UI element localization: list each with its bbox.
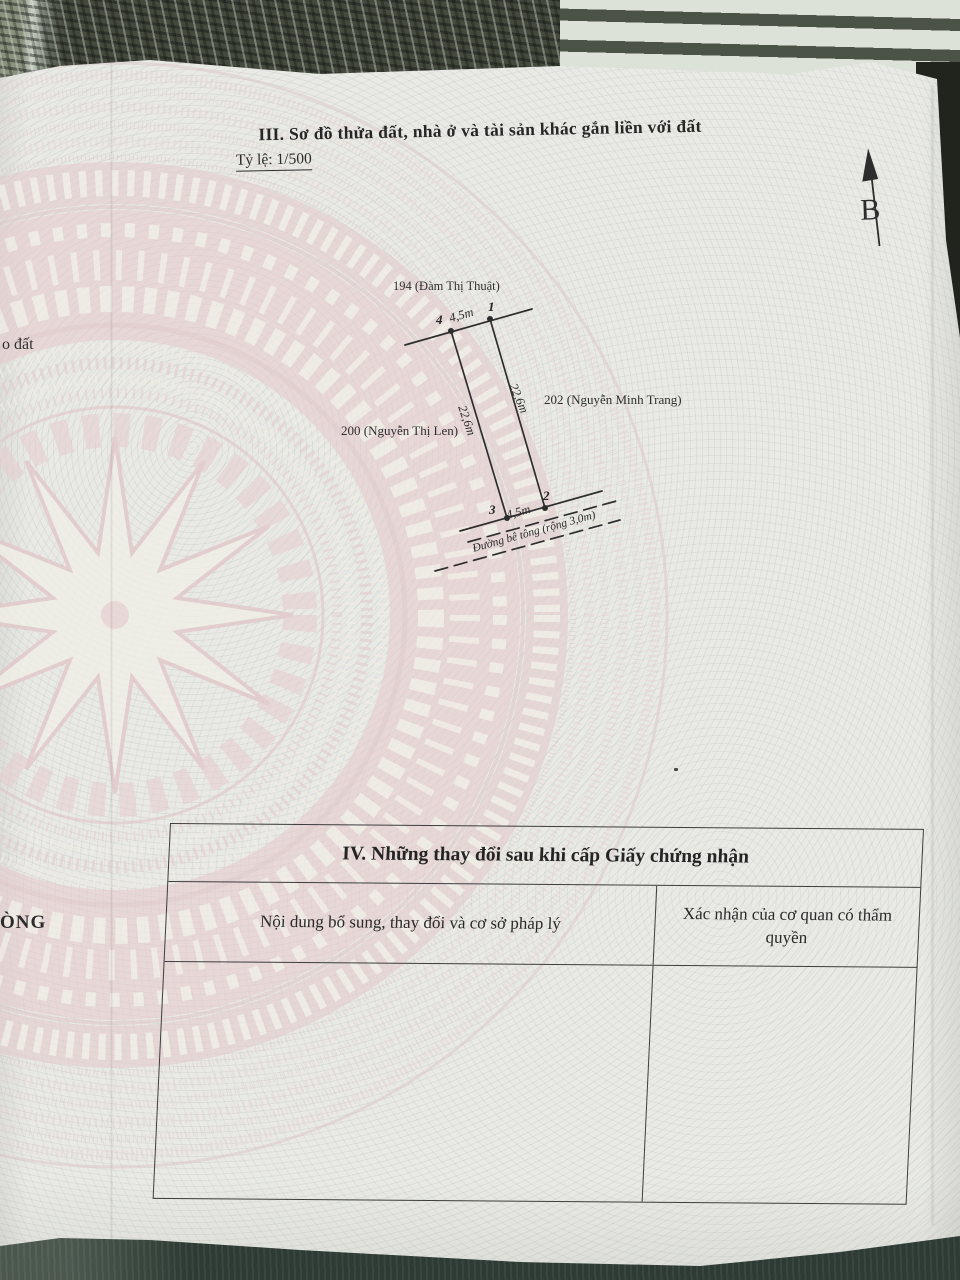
corner-label-2: 2 (543, 488, 550, 504)
paper-crease-right (930, 85, 935, 1225)
ink-speck (674, 768, 678, 771)
table-body-row (154, 962, 917, 1204)
corner-point-2 (542, 505, 548, 511)
section-iv-table: IV. Những thay đổi sau khi cấp Giấy chứn… (153, 823, 924, 1205)
corner-label-3: 3 (489, 502, 496, 518)
table-header-row: Nội dung bổ sung, thay đổi và cơ sở pháp… (165, 882, 921, 968)
edge-fragment-middle: o đất (2, 336, 34, 354)
neighbor-parcel-left-label: 200 (Nguyễn Thị Len) (341, 423, 458, 439)
north-arrow-head (861, 148, 878, 182)
column-header-right-cell: Xác nhận của cơ quan có thẩm quyền (654, 886, 921, 967)
photo-of-land-certificate: III. Sơ đồ thửa đất, nhà ở và tài sản kh… (0, 0, 960, 1280)
corner-label-1: 1 (488, 299, 495, 315)
neighbor-parcel-right-label: 202 (Nguyễn Minh Trang) (544, 392, 682, 408)
paper-fold-line (110, 62, 113, 1250)
corner-point-4 (448, 328, 454, 334)
body-cell-right (643, 966, 917, 1204)
certificate-page: III. Sơ đồ thửa đất, nhà ở và tài sản kh… (0, 0, 960, 1280)
north-label: B (860, 193, 881, 227)
north-arrow: B (850, 141, 910, 263)
edge-fragment-lower: ÒNG (0, 912, 46, 934)
neighbor-parcel-top-label: 194 (Đàm Thị Thuật) (393, 279, 500, 294)
column-header-left-cell: Nội dung bổ sung, thay đổi và cơ sở pháp… (165, 882, 658, 965)
scale-note: Tỷ lệ: 1/500 (236, 150, 312, 172)
corner-label-4: 4 (436, 312, 443, 328)
column-header-right: Xác nhận của cơ quan có thẩm quyền (654, 902, 919, 950)
section-iv-heading: IV. Những thay đổi sau khi cấp Giấy chứn… (168, 824, 923, 888)
corner-point-1 (487, 316, 493, 322)
column-header-left: Nội dung bổ sung, thay đổi và cơ sở pháp… (246, 911, 576, 937)
body-cell-left (154, 962, 654, 1202)
